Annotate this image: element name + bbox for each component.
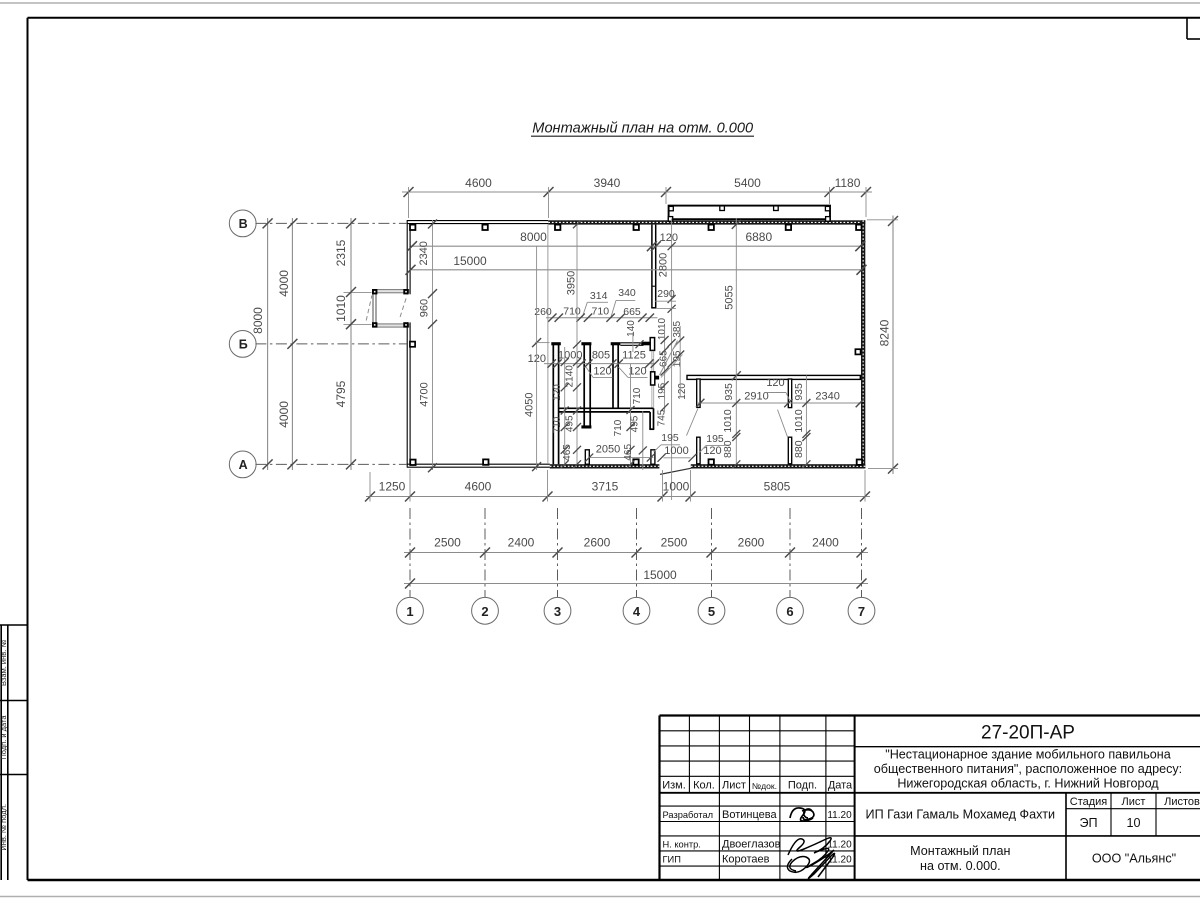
svg-text:общественного питания", распол: общественного питания", расположенное по…	[874, 762, 1182, 776]
svg-text:4795: 4795	[334, 380, 348, 407]
svg-text:Взам. инв. №: Взам. инв. №	[0, 640, 8, 686]
svg-text:120: 120	[628, 366, 646, 378]
svg-text:340: 340	[618, 287, 636, 299]
svg-text:Н. контр.: Н. контр.	[663, 839, 701, 849]
svg-text:2500: 2500	[434, 535, 461, 549]
svg-text:665: 665	[623, 306, 641, 318]
svg-text:290: 290	[657, 288, 675, 300]
svg-text:"Нестационарное здание мобильн: "Нестационарное здание мобильного павиль…	[885, 748, 1171, 762]
svg-text:Подп.: Подп.	[788, 779, 817, 791]
svg-text:140: 140	[626, 320, 637, 337]
svg-text:ГИП: ГИП	[663, 854, 681, 864]
svg-text:3940: 3940	[594, 176, 621, 190]
svg-text:5: 5	[708, 604, 715, 619]
svg-text:2: 2	[481, 604, 488, 619]
svg-text:Монтажный план: Монтажный план	[910, 844, 1010, 858]
svg-text:1250: 1250	[379, 479, 406, 493]
svg-text:Дата: Дата	[828, 779, 853, 791]
svg-text:№док.: №док.	[752, 781, 777, 791]
svg-text:2315: 2315	[334, 239, 348, 266]
svg-text:2050: 2050	[596, 444, 620, 456]
svg-text:120: 120	[552, 384, 563, 401]
svg-text:3950: 3950	[565, 271, 577, 295]
svg-text:Двоеглазов: Двоеглазов	[722, 839, 781, 851]
svg-text:2600: 2600	[584, 535, 611, 549]
svg-text:745: 745	[657, 409, 668, 426]
svg-text:195: 195	[706, 433, 724, 445]
svg-text:4050: 4050	[524, 392, 536, 416]
svg-text:710: 710	[563, 305, 581, 317]
svg-text:3715: 3715	[592, 479, 619, 493]
svg-text:120: 120	[703, 445, 721, 457]
svg-text:2340: 2340	[418, 241, 430, 265]
svg-text:4: 4	[633, 604, 641, 619]
svg-text:Б: Б	[239, 338, 248, 352]
svg-text:120: 120	[593, 366, 611, 378]
svg-text:2400: 2400	[812, 535, 839, 549]
svg-text:Листов: Листов	[1164, 796, 1200, 808]
svg-text:27-20П-АР: 27-20П-АР	[981, 723, 1075, 744]
svg-text:А: А	[239, 458, 248, 472]
svg-text:805: 805	[592, 349, 610, 361]
svg-text:1180: 1180	[835, 176, 861, 190]
svg-text:4600: 4600	[465, 479, 492, 493]
svg-text:1010: 1010	[334, 295, 348, 322]
svg-text:5055: 5055	[724, 285, 736, 309]
svg-text:8000: 8000	[251, 307, 265, 334]
svg-text:Подп. и дата: Подп. и дата	[0, 715, 8, 760]
svg-text:ЭП: ЭП	[1079, 816, 1097, 830]
svg-text:710: 710	[592, 305, 610, 317]
svg-text:В: В	[239, 217, 248, 231]
svg-text:11.20: 11.20	[827, 810, 852, 821]
svg-text:2800: 2800	[657, 253, 669, 277]
svg-text:11.20: 11.20	[827, 839, 852, 850]
svg-text:Разработал: Разработал	[663, 810, 714, 820]
svg-text:4000: 4000	[277, 270, 291, 297]
svg-text:880: 880	[793, 440, 805, 458]
svg-text:1125: 1125	[622, 349, 646, 361]
svg-text:2600: 2600	[738, 535, 765, 549]
svg-text:3: 3	[554, 604, 561, 619]
svg-text:465: 465	[562, 444, 573, 461]
svg-text:2500: 2500	[661, 535, 688, 549]
svg-text:710: 710	[632, 387, 643, 404]
svg-text:120: 120	[677, 383, 688, 400]
svg-text:Коротаев: Коротаев	[722, 854, 770, 866]
svg-text:935: 935	[793, 383, 805, 401]
svg-text:195: 195	[661, 432, 679, 444]
svg-text:4000: 4000	[277, 401, 291, 428]
svg-text:1010: 1010	[793, 409, 805, 433]
svg-text:465: 465	[623, 444, 634, 461]
svg-text:15000: 15000	[643, 568, 677, 582]
svg-text:5400: 5400	[734, 176, 761, 190]
svg-text:120: 120	[766, 377, 784, 389]
svg-text:Инв. № подл.: Инв. № подл.	[0, 804, 8, 851]
svg-text:6880: 6880	[745, 230, 772, 244]
svg-text:1010: 1010	[657, 317, 668, 340]
svg-text:Кол.: Кол.	[693, 779, 715, 791]
svg-text:Вотинцева: Вотинцева	[722, 809, 777, 821]
svg-text:960: 960	[419, 299, 431, 317]
svg-text:2400: 2400	[508, 535, 535, 549]
svg-text:15000: 15000	[453, 254, 487, 268]
svg-text:195: 195	[657, 382, 668, 399]
svg-text:710: 710	[613, 419, 624, 436]
svg-text:7: 7	[858, 604, 865, 619]
svg-text:1010: 1010	[722, 409, 734, 433]
svg-text:Нижегородская область, г. Нижн: Нижегородская область, г. Нижний Новгоро…	[897, 777, 1159, 791]
svg-text:10: 10	[1126, 816, 1140, 830]
svg-text:2340: 2340	[815, 390, 839, 402]
svg-text:1000: 1000	[663, 479, 690, 493]
svg-text:314: 314	[590, 290, 608, 302]
svg-text:Изм.: Изм.	[662, 779, 686, 791]
svg-text:2910: 2910	[744, 390, 768, 402]
svg-text:4700: 4700	[419, 382, 431, 406]
svg-text:495: 495	[629, 415, 640, 432]
svg-text:4600: 4600	[465, 176, 492, 190]
svg-text:495: 495	[565, 415, 576, 432]
svg-text:ООО "Альянс": ООО "Альянс"	[1092, 851, 1176, 865]
svg-text:1000: 1000	[664, 445, 688, 457]
svg-text:Монтажный план на отм. 0.000: Монтажный план на отм. 0.000	[532, 121, 753, 137]
svg-text:Лист: Лист	[1122, 796, 1146, 808]
svg-text:710: 710	[552, 416, 563, 433]
svg-text:ИП Гази Гамаль Мохамед Фахти: ИП Гази Гамаль Мохамед Фахти	[866, 808, 1056, 822]
svg-text:1: 1	[406, 604, 413, 619]
svg-text:5805: 5805	[764, 479, 791, 493]
svg-text:8000: 8000	[520, 230, 547, 244]
svg-text:Стадия: Стадия	[1070, 796, 1108, 808]
svg-text:385: 385	[672, 321, 683, 338]
svg-text:2140: 2140	[565, 365, 576, 388]
svg-text:8240: 8240	[878, 319, 892, 346]
svg-text:Лист: Лист	[722, 779, 746, 791]
svg-text:на отм. 0.000.: на отм. 0.000.	[920, 859, 1001, 873]
svg-text:935: 935	[723, 383, 735, 401]
svg-text:6: 6	[786, 604, 793, 619]
